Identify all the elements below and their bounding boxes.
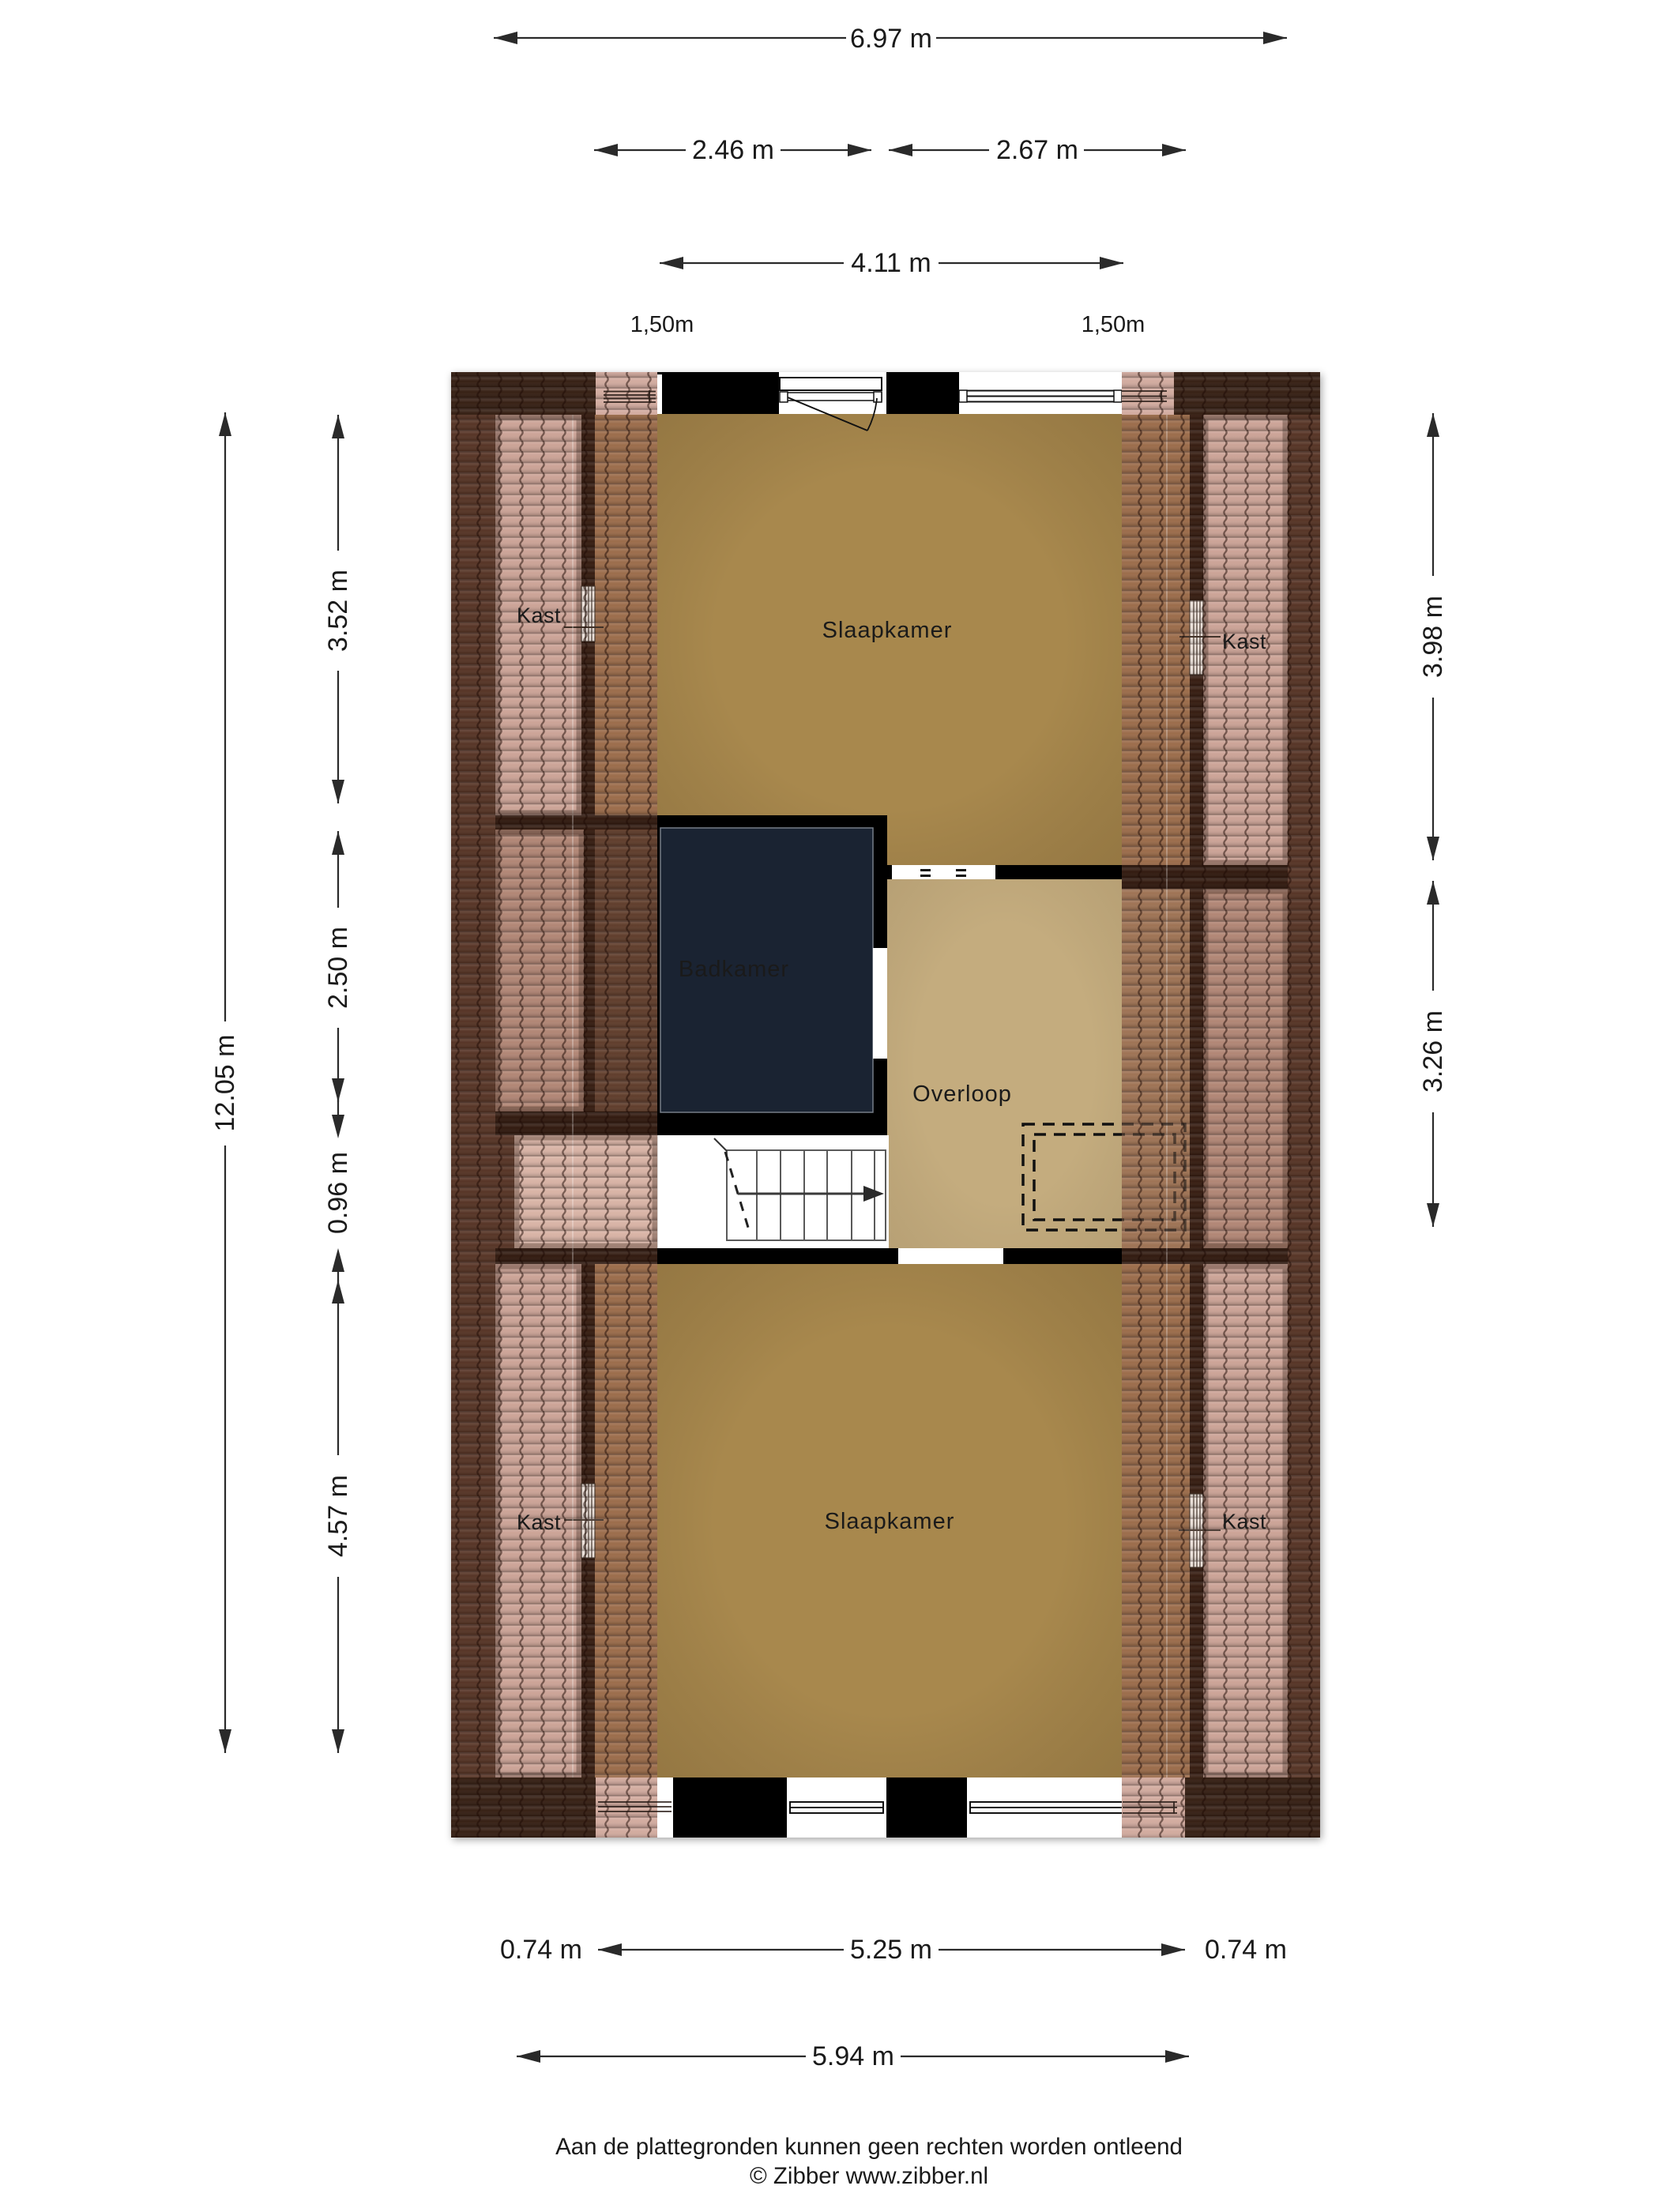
svg-text:Slaapkamer: Slaapkamer [822, 618, 953, 643]
svg-text:12.05 m: 12.05 m [210, 1035, 240, 1132]
svg-text:4.57 m: 4.57 m [323, 1475, 353, 1557]
svg-text:0.96 m: 0.96 m [323, 1152, 353, 1234]
svg-text:2.50 m: 2.50 m [323, 927, 353, 1009]
svg-text:3.98 m: 3.98 m [1418, 596, 1448, 678]
svg-text:5.25 m: 5.25 m [850, 1935, 932, 1965]
svg-text:1,50m: 1,50m [1082, 312, 1145, 337]
svg-text:2.46 m: 2.46 m [692, 135, 774, 165]
svg-text:Kast: Kast [517, 1510, 561, 1534]
svg-text:Slaapkamer: Slaapkamer [825, 1509, 955, 1534]
svg-text:3.26 m: 3.26 m [1418, 1010, 1448, 1093]
svg-text:Aan de plattegronden kunnen ge: Aan de plattegronden kunnen geen rechten… [555, 2134, 1183, 2160]
svg-text:Kast: Kast [1222, 630, 1266, 653]
svg-text:2.67 m: 2.67 m [996, 135, 1078, 165]
svg-text:4.11 m: 4.11 m [851, 248, 931, 278]
svg-text:Overloop: Overloop [912, 1082, 1012, 1107]
svg-text:Kast: Kast [1222, 1510, 1266, 1533]
svg-text:Kast: Kast [517, 604, 561, 627]
svg-text:5.94 m: 5.94 m [812, 2041, 894, 2071]
svg-text:0.74 m: 0.74 m [500, 1935, 582, 1965]
svg-text:Badkamer: Badkamer [679, 957, 789, 982]
svg-text:© Zibber www.zibber.nl: © Zibber www.zibber.nl [750, 2163, 988, 2189]
svg-text:1,50m: 1,50m [630, 312, 694, 337]
svg-text:3.52 m: 3.52 m [323, 570, 353, 652]
svg-text:0.74 m: 0.74 m [1205, 1935, 1287, 1965]
svg-text:6.97 m: 6.97 m [850, 24, 932, 54]
